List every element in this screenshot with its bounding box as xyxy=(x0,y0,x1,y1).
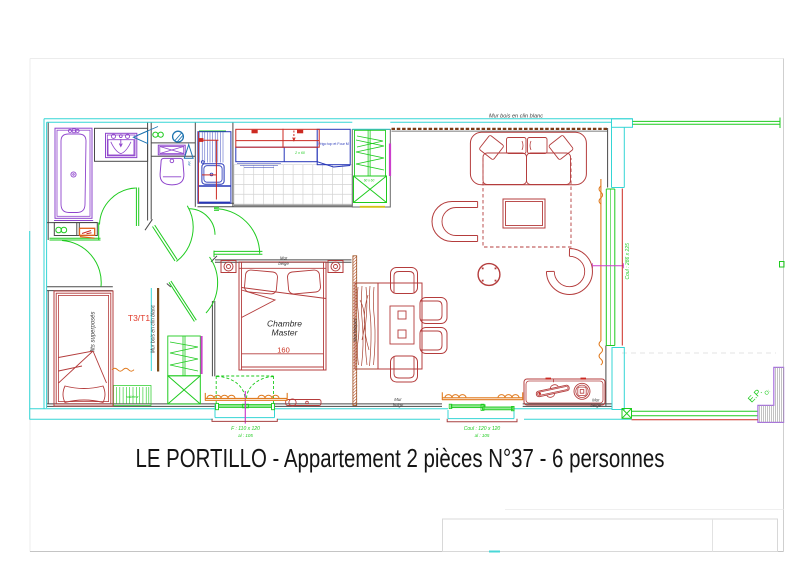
svg-text:beige: beige xyxy=(393,402,404,407)
svg-text:O:: O: xyxy=(764,388,773,397)
svg-text:AR: AR xyxy=(188,161,192,166)
svg-text:Frigo top et Four M: Frigo top et Four M xyxy=(318,142,349,146)
svg-text:Mur bois en clin blanc: Mur bois en clin blanc xyxy=(489,114,543,120)
svg-text:al : 105: al : 105 xyxy=(238,433,253,438)
svg-text:al : 105: al : 105 xyxy=(475,433,490,438)
svg-text:60 x 60: 60 x 60 xyxy=(364,179,375,183)
svg-text:Mur bois en clin blanc: Mur bois en clin blanc xyxy=(150,304,156,353)
svg-text:2 x 60: 2 x 60 xyxy=(294,151,305,155)
svg-text:Mur: Mur xyxy=(592,398,600,403)
svg-text:F : 110 x 120: F : 110 x 120 xyxy=(231,426,260,432)
svg-text:160: 160 xyxy=(277,346,290,355)
svg-text:Coul : 286 x 225: Coul : 286 x 225 xyxy=(625,243,631,280)
svg-text:lits superposés: lits superposés xyxy=(91,311,97,351)
svg-text:T3/T1: T3/T1 xyxy=(128,313,150,323)
svg-text:Mur: Mur xyxy=(280,256,288,261)
svg-text:Mur: Mur xyxy=(394,397,402,402)
svg-text:beige: beige xyxy=(278,261,289,266)
svg-text:radiateur: radiateur xyxy=(126,395,140,399)
svg-text:E.P.: E.P. xyxy=(746,386,764,404)
svg-text:Coul : 120 x 120: Coul : 120 x 120 xyxy=(464,426,501,432)
svg-text:Mur briques: Mur briques xyxy=(353,318,358,342)
svg-text:Master: Master xyxy=(272,328,299,338)
svg-text:beige: beige xyxy=(591,403,602,408)
svg-text:LE PORTILLO - Appartement 2 pi: LE PORTILLO - Appartement 2 pièces N°37 … xyxy=(136,443,665,473)
